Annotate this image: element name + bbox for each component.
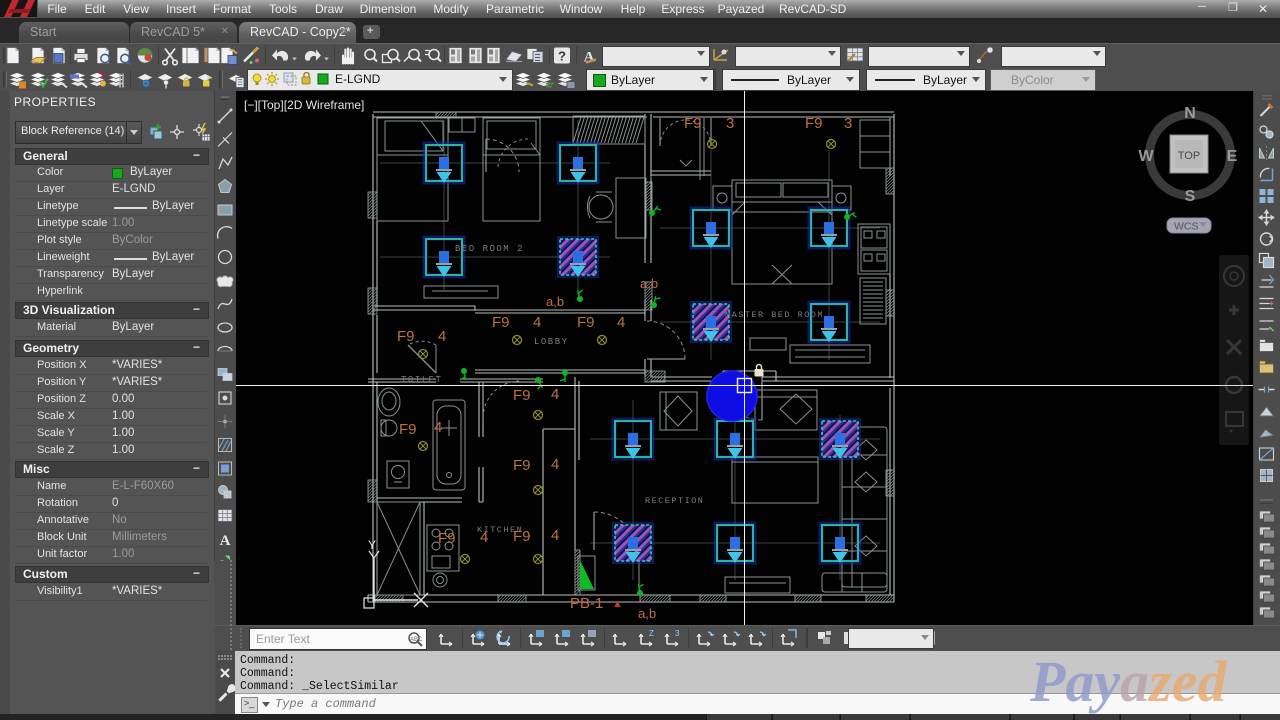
svg-text:3: 3 <box>844 115 852 132</box>
svg-text:F9: F9 <box>438 530 456 547</box>
svg-text:F9: F9 <box>513 528 531 545</box>
svg-text:F9: F9 <box>805 115 823 132</box>
svg-text:WCS: WCS <box>1174 221 1199 233</box>
svg-text:F9: F9 <box>684 115 702 132</box>
svg-text:4: 4 <box>533 314 541 331</box>
svg-text:4: 4 <box>551 386 559 403</box>
svg-text:LOBBY: LOBBY <box>534 337 569 347</box>
svg-text:?: ? <box>558 49 566 64</box>
svg-text:a,b: a,b <box>546 294 564 309</box>
svg-text:S: S <box>1185 188 1196 205</box>
svg-text:4: 4 <box>551 527 559 544</box>
svg-text:TOILET: TOILET <box>401 375 442 385</box>
svg-text:N: N <box>1184 105 1196 122</box>
svg-text:4: 4 <box>617 314 625 331</box>
svg-text:A: A <box>220 533 231 549</box>
svg-text:ABC: ABC <box>410 637 423 643</box>
svg-text:W: W <box>1138 148 1154 165</box>
svg-text:BED ROOM 2: BED ROOM 2 <box>455 244 524 254</box>
svg-text:F9: F9 <box>397 328 415 345</box>
svg-text:F9: F9 <box>513 457 531 474</box>
svg-text:▲: ▲ <box>612 598 623 610</box>
svg-text:RECEPTION: RECEPTION <box>645 496 704 506</box>
svg-text:Z: Z <box>649 629 654 638</box>
svg-text:3: 3 <box>675 629 680 638</box>
svg-text:F9: F9 <box>513 387 531 404</box>
svg-text:F9: F9 <box>399 421 417 438</box>
svg-text:3: 3 <box>726 115 734 132</box>
svg-text:TOP: TOP <box>1178 150 1200 162</box>
svg-text:[−][Top][2D Wireframe]: [−][Top][2D Wireframe] <box>244 98 364 112</box>
svg-text:E-LGND: E-LGND <box>335 72 381 86</box>
svg-text:a,b: a,b <box>640 276 658 291</box>
svg-text:a,b: a,b <box>638 606 656 621</box>
svg-text:PB-1: PB-1 <box>570 595 603 612</box>
svg-text:4: 4 <box>434 419 442 436</box>
svg-text:4: 4 <box>438 328 446 345</box>
svg-text:Y: Y <box>368 538 376 552</box>
svg-text:MASTER BED ROOM: MASTER BED ROOM <box>725 310 824 320</box>
svg-text:F9: F9 <box>577 314 595 331</box>
svg-text:E: E <box>1227 148 1238 165</box>
svg-text:F9: F9 <box>492 314 510 331</box>
svg-text:A: A <box>584 50 595 66</box>
svg-text:4: 4 <box>551 456 559 473</box>
svg-text:4: 4 <box>480 529 488 546</box>
